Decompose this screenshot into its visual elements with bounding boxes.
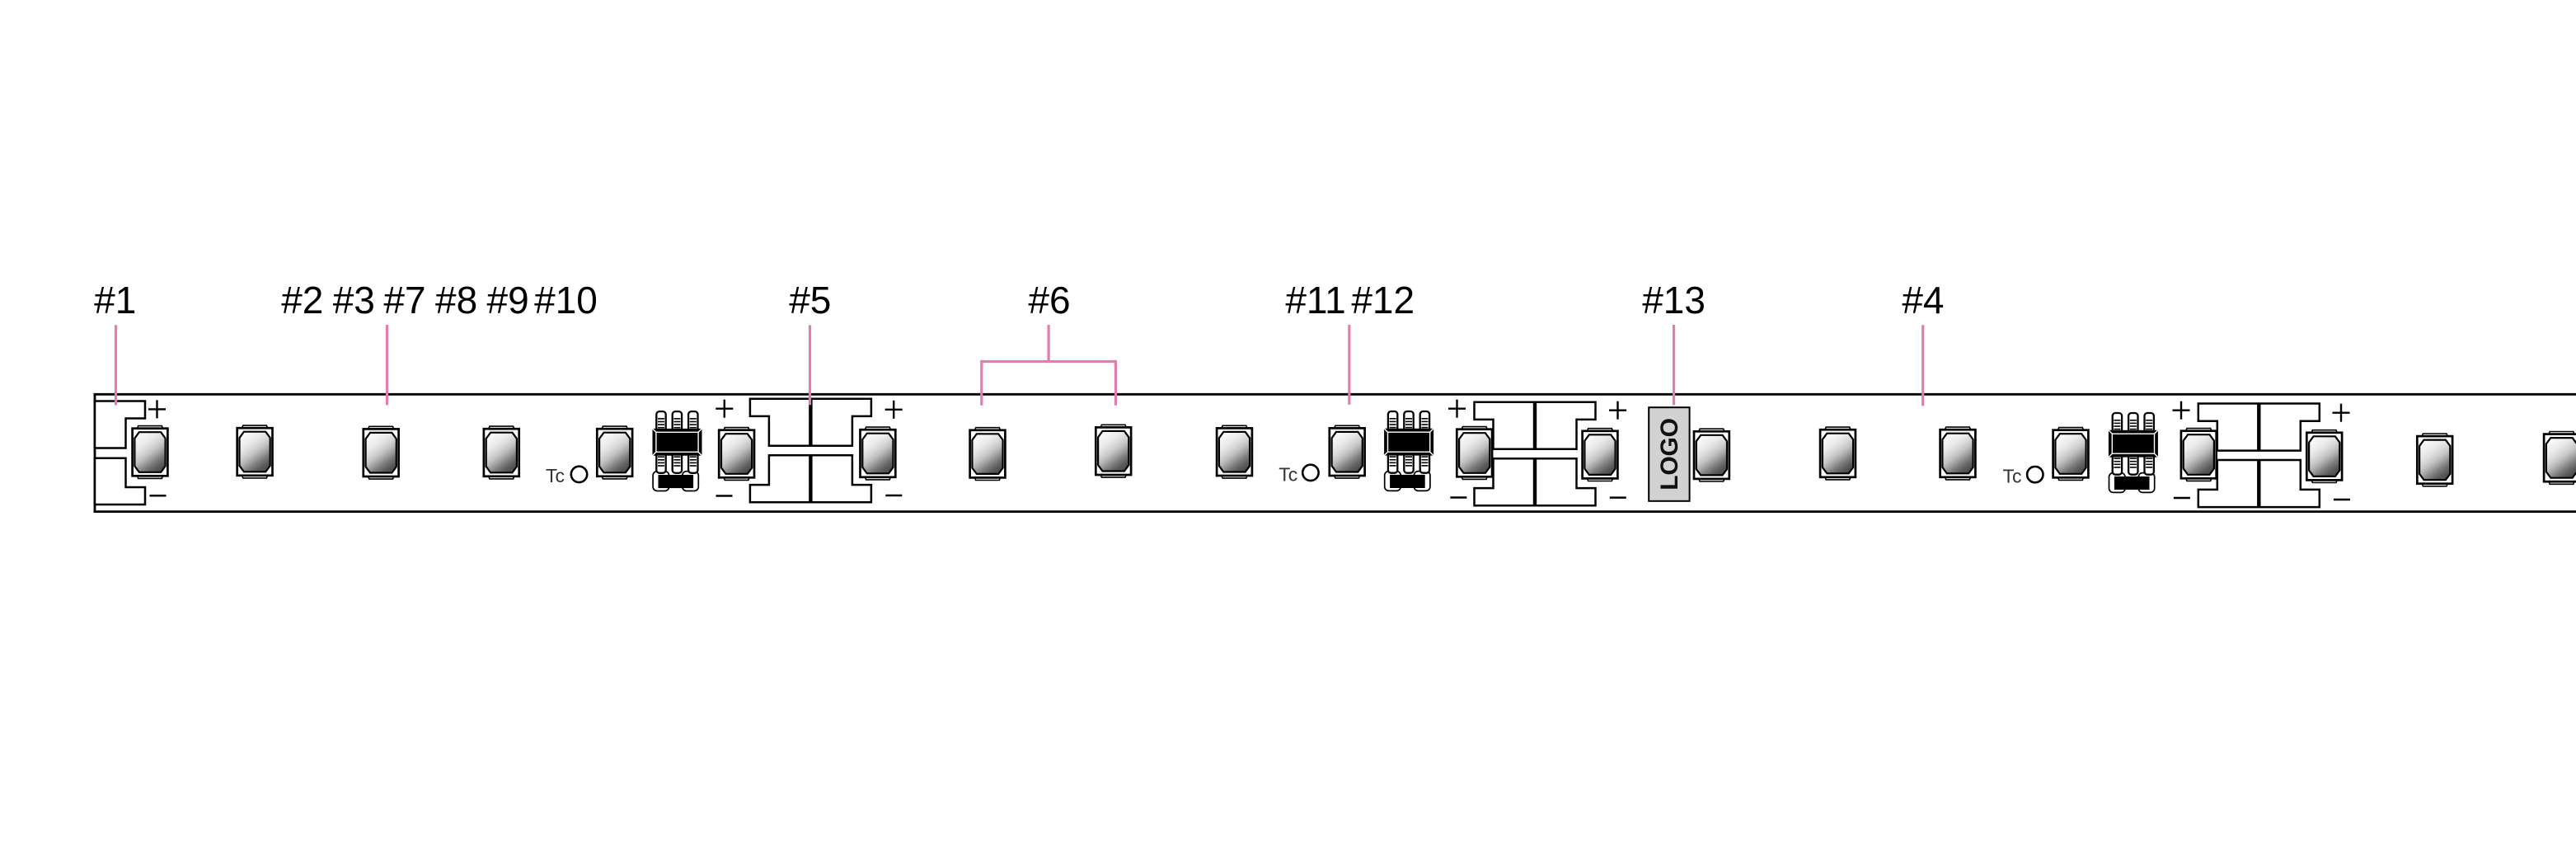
- svg-text:#2: #2: [281, 279, 323, 322]
- svg-text:#11: #11: [1285, 279, 1345, 322]
- svg-text:#10: #10: [534, 279, 598, 322]
- svg-text:LOGO: LOGO: [1656, 418, 1683, 491]
- svg-text:#3: #3: [333, 279, 375, 322]
- svg-text:#5: #5: [789, 279, 831, 322]
- svg-text:#13: #13: [1642, 279, 1706, 322]
- svg-text:#7: #7: [383, 279, 425, 322]
- svg-text:#4: #4: [1902, 279, 1944, 322]
- svg-text:Tc: Tc: [546, 465, 565, 486]
- svg-text:#12: #12: [1351, 279, 1415, 322]
- svg-text:#8: #8: [435, 279, 477, 322]
- svg-text:Tc: Tc: [1279, 464, 1297, 486]
- svg-text:#6: #6: [1028, 279, 1070, 322]
- svg-text:Tc: Tc: [2003, 466, 2022, 487]
- svg-text:#9: #9: [487, 279, 529, 322]
- svg-text:#1: #1: [94, 279, 136, 322]
